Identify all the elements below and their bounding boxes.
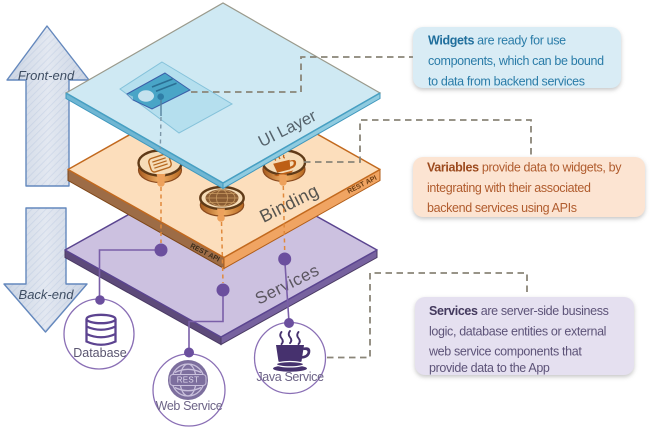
svg-text:REST: REST — [177, 376, 200, 385]
svg-text:Front-end: Front-end — [18, 68, 75, 83]
svg-text:Java Service: Java Service — [256, 370, 324, 384]
svg-text:Database: Database — [73, 346, 127, 360]
svg-text:Web Service: Web Service — [156, 399, 223, 413]
svg-text:Back-end: Back-end — [19, 287, 75, 302]
